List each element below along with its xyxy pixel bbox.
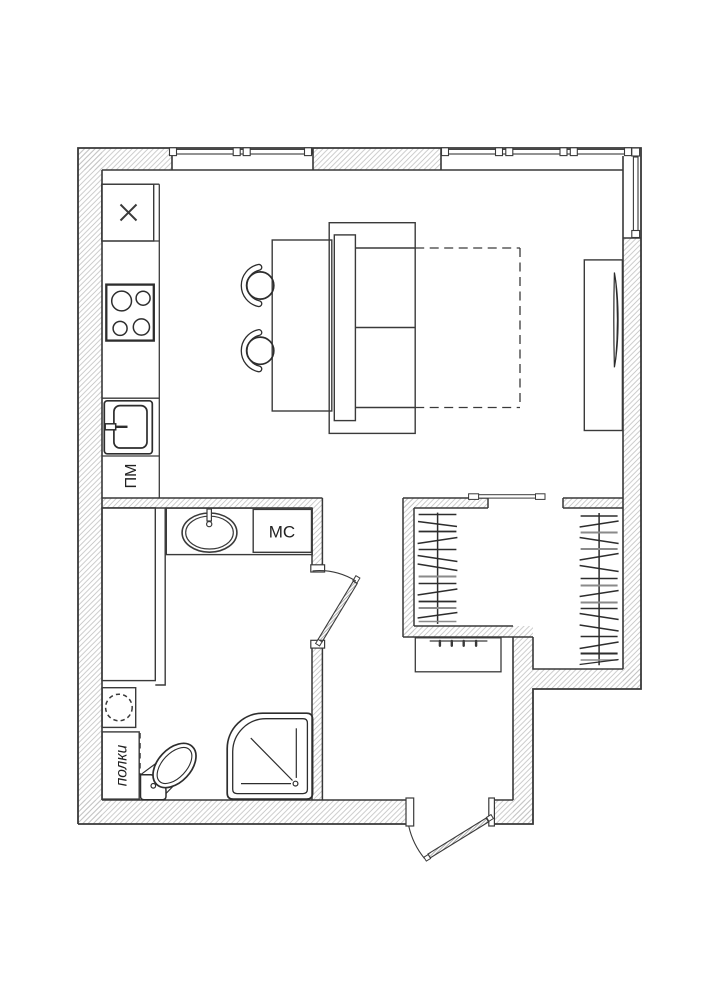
svg-text:полки: полки (114, 744, 131, 786)
svg-text:ПМ: ПМ (123, 464, 140, 489)
svg-text:МС: МС (269, 523, 295, 542)
